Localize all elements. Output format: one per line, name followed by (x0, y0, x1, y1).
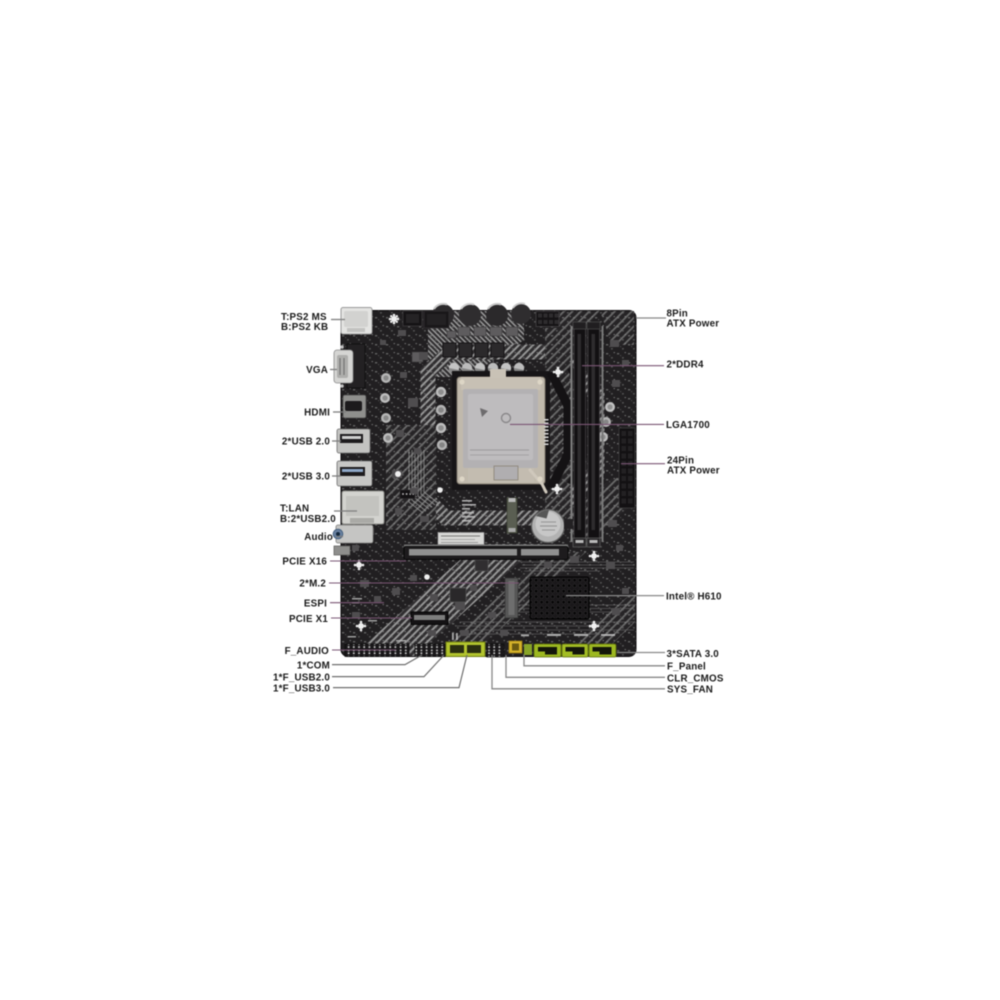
svg-text:ATX Power: ATX Power (667, 319, 720, 330)
svg-text:PCIE X16: PCIE X16 (282, 557, 327, 568)
svg-text:1*COM: 1*COM (297, 660, 330, 671)
svg-text:2*DDR4: 2*DDR4 (667, 360, 704, 371)
svg-text:1*F_USB2.0: 1*F_USB2.0 (273, 673, 330, 684)
svg-text:2*USB 3.0: 2*USB 3.0 (282, 472, 330, 483)
svg-text:3*SATA 3.0: 3*SATA 3.0 (667, 649, 720, 660)
svg-text:F_AUDIO: F_AUDIO (285, 646, 330, 657)
svg-text:Intel® H610: Intel® H610 (666, 591, 722, 602)
svg-text:ESPI: ESPI (304, 598, 327, 609)
svg-text:ATX Power: ATX Power (667, 465, 720, 476)
svg-text:F_Panel: F_Panel (667, 662, 706, 673)
svg-text:B:PS2 KB: B:PS2 KB (281, 322, 328, 333)
svg-text:CLR_CMOS: CLR_CMOS (667, 674, 724, 685)
svg-text:Audio: Audio (304, 532, 333, 543)
svg-text:2*USB 2.0: 2*USB 2.0 (282, 437, 330, 448)
svg-text:B:2*USB2.0: B:2*USB2.0 (280, 514, 336, 525)
svg-text:VGA: VGA (306, 365, 328, 376)
svg-text:HDMI: HDMI (304, 408, 330, 419)
svg-text:PCIE X1: PCIE X1 (289, 614, 328, 625)
svg-text:2*M.2: 2*M.2 (299, 579, 326, 590)
svg-text:LGA1700: LGA1700 (666, 420, 710, 431)
svg-text:1*F_USB3.0: 1*F_USB3.0 (273, 684, 330, 695)
svg-text:SYS_FAN: SYS_FAN (667, 685, 713, 696)
